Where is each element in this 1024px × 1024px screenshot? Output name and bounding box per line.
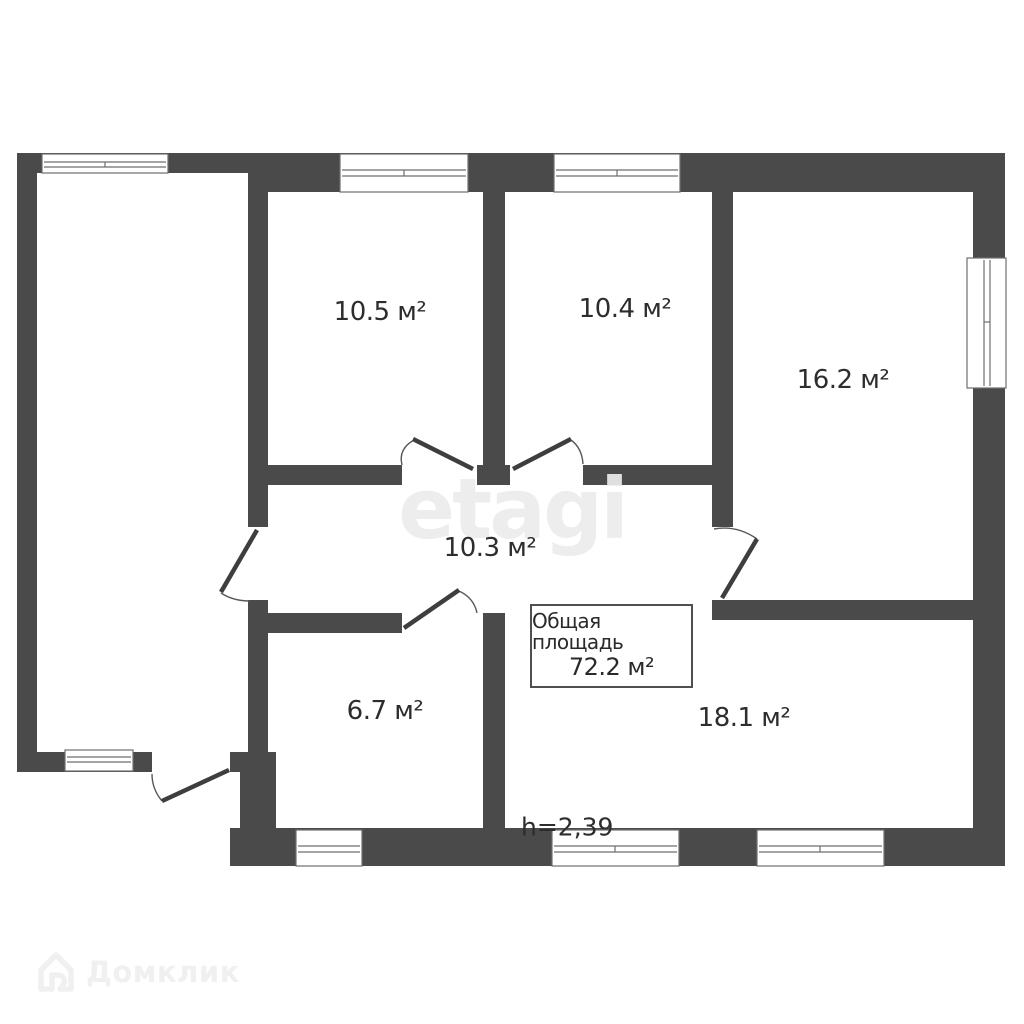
wall-living16-divider: [712, 173, 733, 527]
window-room-16-2: [967, 258, 1006, 388]
window-room-10-4: [554, 154, 680, 192]
door-leaf-left-room: [221, 530, 257, 592]
wall-bath-living-divider: [483, 613, 505, 828]
wall-leftroom-divider-lower: [248, 600, 268, 830]
door-leaf-room-6-7: [404, 590, 459, 628]
door-leaf-room-16-2: [722, 539, 757, 598]
window-room-18-1-right: [757, 830, 884, 866]
window-top-left: [42, 154, 168, 173]
door-leaf-entry: [162, 770, 229, 801]
total-area-title: Общая площадь: [532, 611, 691, 653]
window-leftroom-bottom: [65, 750, 133, 771]
door-arc-room-16-2: [714, 528, 757, 539]
domclick-watermark-text: Домклик: [86, 955, 240, 989]
wall-room18-top: [712, 600, 973, 620]
etagi-watermark: etagi: [398, 460, 626, 558]
door-arc-entry: [152, 774, 162, 801]
window-room-10-5: [340, 154, 468, 192]
total-area-box: Общая площадь 72.2 м²: [530, 604, 693, 688]
wall-exterior-left: [17, 153, 37, 772]
floorplan-canvas: etagi Домклик 10.5 м² 10.4 м² 16.2 м² 10…: [0, 0, 1024, 1024]
door-arc-room-6-7: [459, 591, 477, 613]
domclick-watermark: Домклик: [36, 950, 240, 994]
total-area-value: 72.2 м²: [569, 655, 654, 680]
wall-bedrooms-divider: [483, 153, 505, 485]
door-arc-left-room: [221, 593, 250, 601]
wall-room67-top: [268, 613, 402, 633]
domclick-house-icon: [36, 950, 76, 994]
wall-leftroom-divider-upper: [248, 153, 268, 527]
window-room-18-1-left: [552, 830, 679, 866]
wall-hall-top-left: [268, 465, 402, 485]
window-room-6-7: [296, 830, 362, 866]
